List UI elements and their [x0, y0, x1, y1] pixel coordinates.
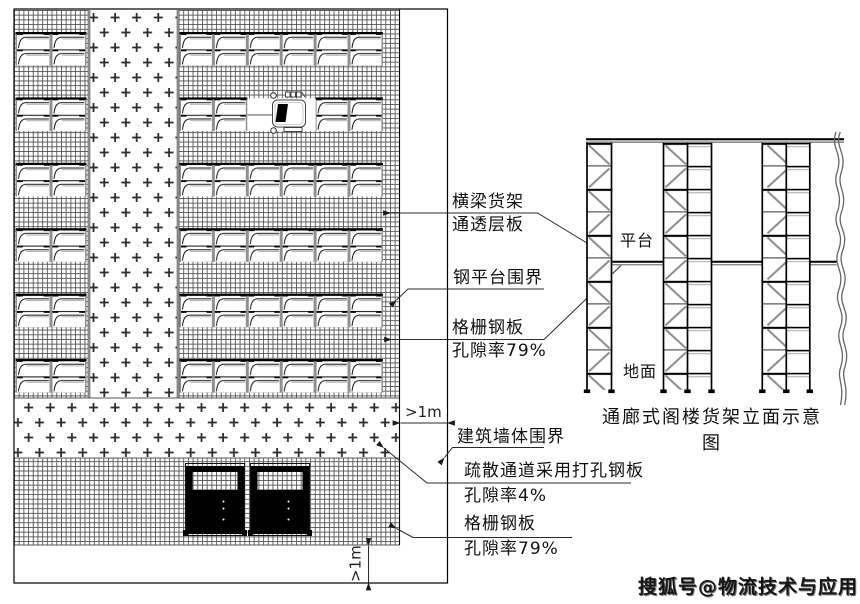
- dimension-corridor-width-text: >1m: [405, 404, 442, 421]
- rack-bay-2: [787, 143, 811, 390]
- elevation-platform-label: 平台: [620, 232, 654, 250]
- mesh-left-column: [14, 10, 88, 398]
- rack-frame-3: [762, 143, 787, 390]
- drawing-canvas: 横梁货架 通透层板 钢平台围界 格栅钢板 孔隙率79% 建筑墙体围界 疏散通道采…: [0, 0, 860, 604]
- corridor-horizontal: [14, 398, 400, 458]
- dimension-bottom-gap-text: >1m: [347, 544, 364, 584]
- leader-steel-platform: [397, 289, 545, 300]
- callout-evac-label-1: 疏散通道采用打孔钢板: [464, 462, 644, 482]
- elevation-ground-label: 地面: [623, 363, 657, 381]
- top-beam: [586, 138, 844, 140]
- callout-beam-rack-label-2: 通透层板: [452, 216, 524, 236]
- callout-beam-rack-label-1: 横梁货架: [452, 193, 524, 213]
- callout-evac-label-2: 孔隙率4%: [464, 487, 547, 507]
- elevation-caption: 通廊式阁楼货架立面示意图: [596, 403, 828, 455]
- callout-wall-boundary-label: 建筑墙体围界: [457, 428, 565, 448]
- rack-bay-1: [688, 143, 712, 390]
- cad-linework: [0, 0, 860, 604]
- callout-grating-lower-label-1: 格栅钢板: [464, 515, 536, 535]
- callout-grating-upper-label-2: 孔隙率79%: [452, 342, 547, 362]
- frame-feet: [584, 390, 813, 394]
- callout-grating-upper-label-1: 格栅钢板: [452, 319, 524, 339]
- mesh-right-field: [179, 10, 400, 398]
- rack-frame-2: [663, 143, 688, 390]
- corridor-vertical: [90, 10, 178, 398]
- rack-frame-1: [587, 143, 613, 390]
- watermark: 搜狐号@物流技术与应用: [632, 572, 858, 599]
- callout-steel-platform-label: 钢平台围界: [453, 269, 543, 289]
- break-line: [834, 132, 846, 405]
- leader-wall-boundary: [445, 448, 545, 458]
- floor-plan: [14, 9, 448, 583]
- callout-grating-lower-label-2: 孔隙率79%: [464, 540, 559, 560]
